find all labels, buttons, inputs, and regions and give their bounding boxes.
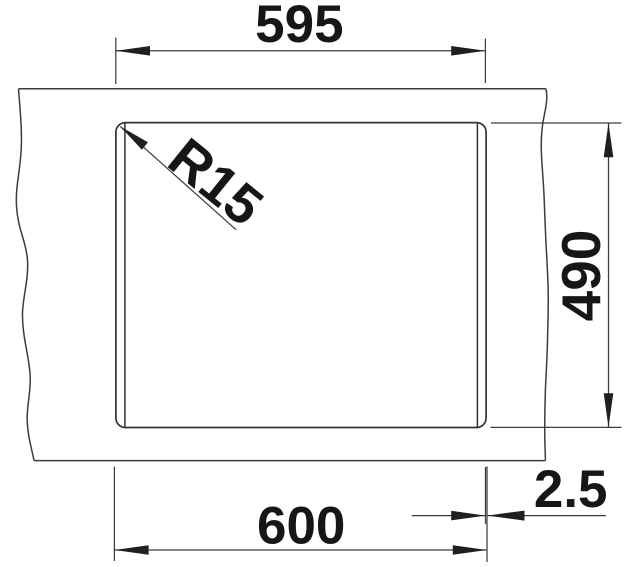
- svg-text:2.5: 2.5: [534, 460, 608, 519]
- svg-text:595: 595: [255, 0, 343, 54]
- svg-text:600: 600: [257, 496, 345, 555]
- svg-text:R15: R15: [157, 126, 274, 238]
- svg-text:490: 490: [550, 230, 612, 322]
